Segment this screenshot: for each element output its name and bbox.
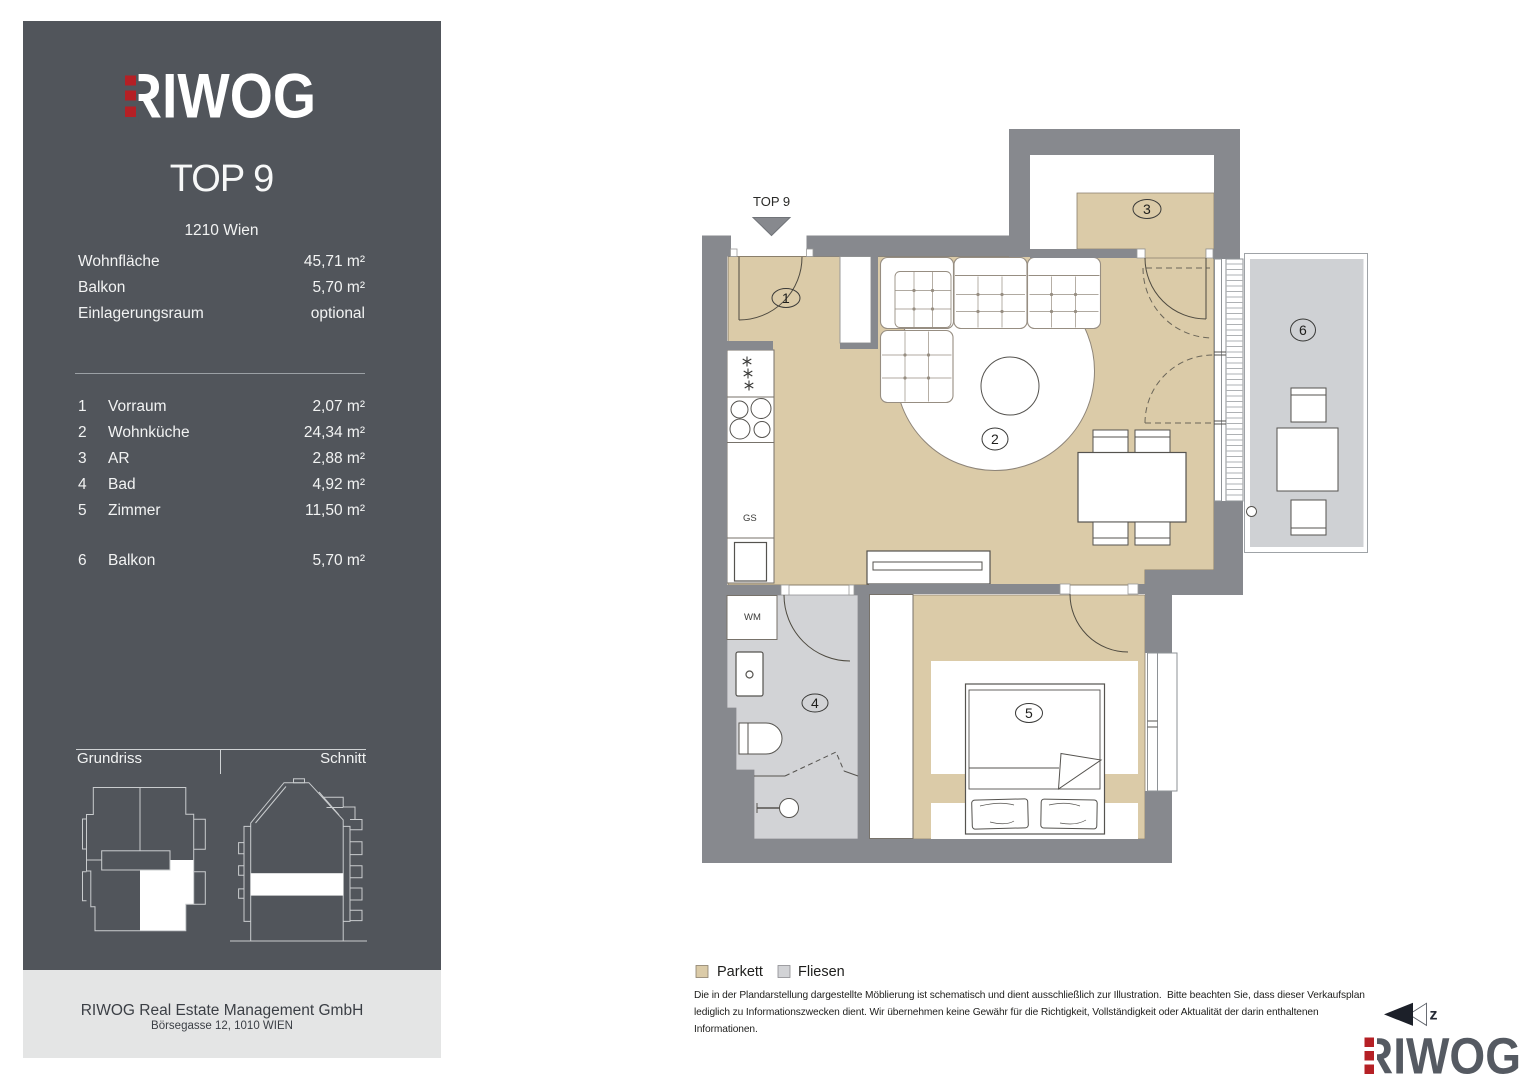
- svg-text:GS: GS: [743, 513, 757, 524]
- svg-text:WM: WM: [744, 612, 761, 623]
- svg-text:TOP 9: TOP 9: [753, 194, 790, 209]
- svg-text:5: 5: [1025, 705, 1033, 721]
- svg-text:Parkett: Parkett: [717, 964, 763, 980]
- svg-text:Fliesen: Fliesen: [798, 964, 845, 980]
- svg-text:6: 6: [1299, 322, 1307, 338]
- svg-text:3: 3: [1143, 201, 1151, 217]
- svg-text:1: 1: [782, 290, 790, 306]
- svg-text:2: 2: [991, 431, 999, 447]
- svg-text:4: 4: [811, 695, 819, 711]
